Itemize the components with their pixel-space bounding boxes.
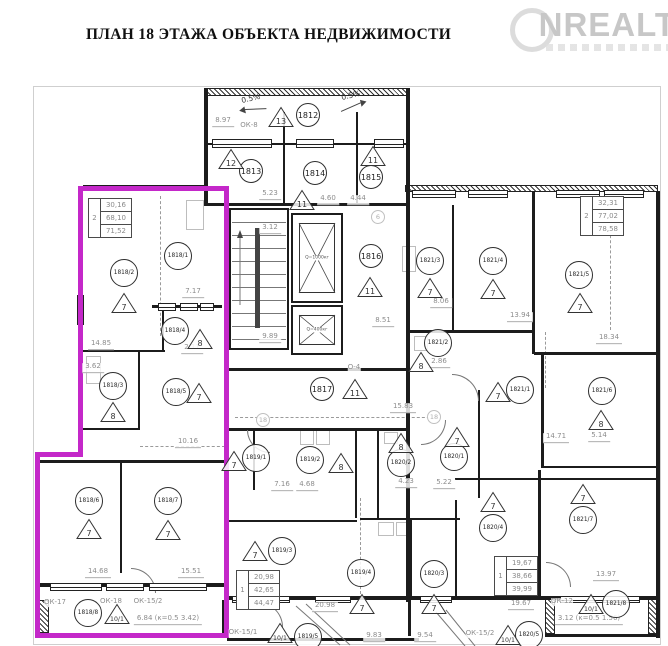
wall-segment [452,205,454,332]
dimension-label: 15.83 [390,403,416,413]
elevator-capacity-label: Q=1000кг [304,256,330,261]
dimension-label: 4.23 [395,478,417,488]
wall-segment [656,191,660,638]
room-number-circle: 1821/8 [602,590,630,618]
room-number-circle: 1818/6 [75,487,103,515]
wall-segment [478,390,480,498]
dimension-label: 9.54 [414,632,436,642]
area-triangle: 11 [341,378,369,401]
room-number-circle: 1821/4 [479,247,507,275]
area-triangle: 7 [154,519,182,542]
area-triangle: 11 [356,276,384,299]
window-opening [180,303,198,311]
wall-segment [356,112,358,205]
svg-text:7: 7 [165,530,170,539]
apartment-area-table: 120,9842,6544,47 [236,570,280,610]
room-number-circle: 1818/2 [110,259,138,287]
fixture [186,200,204,230]
room-number-circle: 1818/1 [164,242,192,270]
area-triangle: 11 [359,145,387,168]
area-triangle: 7 [348,593,376,616]
highlight-outline-segment [78,186,83,457]
window-opening [468,190,508,198]
area-value-cell: 19,67 [507,557,537,569]
dimension-label: 20.98 [312,602,338,612]
dimension-label: 14.85 [88,340,114,350]
fixture [300,430,314,445]
area-triangle: 7 [566,292,594,315]
area-triangle: 7 [479,278,507,301]
dimension-label: 9.89 [259,333,281,343]
svg-text:7: 7 [121,303,126,312]
axis-bubble: 18 [427,410,441,424]
floor-plan-page: ПЛАН 18 ЭТАЖА ОБЪЕКТА НЕДВИЖИМОСТИ NREAL… [0,0,668,646]
stair-tread [232,222,286,223]
fixture [378,522,394,536]
dimension-label: 3.12 [259,224,281,234]
dimension-label: 4.60 [317,195,339,205]
window-opening [106,583,144,591]
dimension-label: 5.23 [259,190,281,200]
area-triangle: 10/1 [266,622,294,645]
svg-text:11: 11 [297,200,307,209]
dashed-partition-line [160,196,161,336]
area-value-cell: 32,31 [593,197,623,209]
room-number-circle: 1819/3 [268,537,296,565]
room-number-circle: 1818/7 [154,487,182,515]
svg-text:8: 8 [338,463,343,472]
dimension-label: 7.17 [182,288,204,298]
area-value-cell: 38,66 [507,569,537,582]
area-triangle: 8 [186,328,214,351]
fixture [316,430,330,445]
svg-text:10/1: 10/1 [110,616,124,623]
room-number-circle: 1818/8 [74,599,102,627]
svg-text:7: 7 [359,604,364,613]
room-count-cell: 1 [237,571,249,609]
dashed-partition-line [610,230,611,330]
dimension-label: 8.97 [212,117,234,127]
room-number-circle: 1820/3 [420,560,448,588]
area-value-cell: 78,58 [593,222,623,235]
room-number-circle: 1816 [359,244,383,268]
dimension-label: 6.84 (к=0.5 3.42) [134,615,202,625]
room-number-circle: 1818/4 [161,317,189,345]
wall-segment [538,470,541,598]
room-number-circle: 1821/5 [565,261,593,289]
dimension-label: 4.44 [347,195,369,205]
window-label: ОК-17 [44,599,66,607]
stair-stringer [255,228,260,328]
room-number-circle: 1821/7 [569,506,597,534]
svg-text:7: 7 [490,289,495,298]
wall-segment [83,350,165,352]
area-triangle: 10/1 [577,593,605,616]
area-triangle: 7 [75,518,103,541]
area-value-cell: 77,02 [593,209,623,222]
wall-segment [408,600,411,636]
area-triangle: 7 [420,593,448,616]
window-opening [50,583,102,591]
svg-text:7: 7 [577,303,582,312]
wall-segment [83,428,140,430]
area-triangle: 13 [267,106,295,129]
area-triangle: 8 [407,351,435,374]
room-number-circle: 1812 [296,103,320,127]
area-triangle: 8 [99,401,127,424]
area-triangle: 8 [587,409,615,432]
dimension-label: 5.22 [433,479,455,489]
room-count-cell: 2 [89,199,101,237]
dimension-label: 14.68 [85,568,111,578]
svg-text:7: 7 [431,604,436,613]
wall-segment [227,638,419,641]
axis-bubble: 6 [371,210,385,224]
floor-plan-drawing: Q=1000кгQ=400кг1812131813121814111815111… [0,0,668,646]
dimension-label: 7.16 [271,481,293,491]
svg-text:10/1: 10/1 [584,606,598,613]
area-triangle: 7 [110,292,138,315]
apartment-area-table: 230,1668,1071,52 [88,198,132,238]
window-opening [158,303,176,311]
wall-segment [229,208,289,210]
svg-text:8: 8 [398,443,403,452]
window-opening [412,190,456,198]
dimension-label: 18.34 [596,334,622,344]
wall-segment [355,430,357,518]
svg-text:7: 7 [580,494,585,503]
room-number-circle: 1814 [303,161,327,185]
wall-segment [229,368,410,371]
dashed-partition-line [545,332,546,388]
wall-segment [545,634,658,637]
wall-segment [287,208,289,350]
dimension-label: 10.16 [175,438,201,448]
area-triangle: 11 [288,189,316,212]
dimension-label: 13.94 [507,312,533,322]
window-label: ОК-15/1 [229,629,258,637]
svg-text:10/1: 10/1 [273,635,287,642]
area-triangle: 8 [327,452,355,475]
window-opening [149,583,207,591]
svg-text:7: 7 [86,529,91,538]
room-number-circle: 1819/5 [294,623,322,646]
area-triangle: 12 [217,148,245,171]
wall-segment [227,520,357,522]
window-label: ОК-15/2 [466,630,495,638]
room-number-circle: 1821/3 [416,247,444,275]
highlight-outline-segment [35,452,83,457]
wall-segment [377,430,379,518]
wall-segment [410,520,412,598]
svg-text:13: 13 [276,117,286,126]
dimension-label: 14.71 [543,433,569,443]
svg-text:8: 8 [598,420,603,429]
svg-text:11: 11 [350,389,360,398]
window-label: ОК-12 [551,598,573,606]
room-count-cell: 1 [495,557,507,595]
window-opening [200,303,214,311]
dimension-label: 8.51 [372,317,394,327]
svg-text:7: 7 [427,288,432,297]
wall-segment [541,352,544,468]
room-number-circle: 1815 [359,165,383,189]
svg-text:8: 8 [110,412,115,421]
svg-text:11: 11 [368,156,378,165]
dimension-label: 3.62 [82,363,104,373]
room-number-circle: 1820/4 [479,514,507,542]
apartment-area-table: 232,3177,0278,58 [580,196,624,236]
dimension-label: О-4 [348,364,361,372]
room-number-circle: 1819/4 [347,559,375,587]
area-triangle: 7 [484,381,512,404]
area-value-cell: 71,52 [101,224,131,237]
highlight-outline-segment [35,633,229,638]
svg-text:7: 7 [495,392,500,401]
room-number-circle: 1817 [310,377,334,401]
wall-segment [455,478,660,480]
window-label: ОК-15/2 [134,598,163,606]
elevator-capacity-label: Q=400кг [306,328,329,333]
svg-text:7: 7 [231,461,236,470]
dimension-label: 9.83 [363,632,385,642]
svg-text:7: 7 [252,551,257,560]
area-triangle: 7 [479,491,507,514]
area-triangle: 10/1 [494,624,522,646]
window-label: ОК-8 [240,122,257,130]
area-triangle: 7 [569,483,597,506]
svg-text:11: 11 [365,287,375,296]
dimension-label: 19.67 [508,600,534,610]
area-triangle: 7 [416,277,444,300]
area-triangle: 7 [241,540,269,563]
wall-segment [455,500,457,598]
area-value-cell: 68,10 [101,211,131,224]
area-value-cell: 42,65 [249,583,279,596]
dimension-label: 4.68 [296,481,318,491]
svg-text:10/1: 10/1 [501,637,515,644]
svg-text:8: 8 [197,339,202,348]
area-value-cell: 44,47 [249,596,279,609]
highlight-outline-segment [78,186,229,191]
svg-text:8: 8 [418,362,423,371]
svg-text:7: 7 [490,502,495,511]
svg-text:12: 12 [226,159,236,168]
wall-segment [138,352,140,430]
area-value-cell: 30,16 [101,199,131,211]
apartment-area-table: 119,6738,6639,99 [494,556,538,596]
area-value-cell: 39,99 [507,582,537,595]
dimension-label: 8.06 [430,298,452,308]
area-triangle: 7 [220,450,248,473]
highlight-outline-segment [224,186,229,635]
wall-segment [229,208,231,350]
dimension-label: 13.97 [593,571,619,581]
window-opening [296,139,334,148]
dimension-label: 5.14 [588,432,610,442]
room-count-cell: 2 [581,197,593,235]
room-number-circle: 1818/3 [99,372,127,400]
wall-segment [541,466,660,468]
area-triangle: 7 [185,382,213,405]
svg-text:7: 7 [196,393,201,402]
room-number-circle: 1819/2 [296,446,324,474]
room-number-circle: 1821/6 [588,377,616,405]
area-triangle: 7 [443,426,471,449]
wall-segment [120,463,122,573]
area-value-cell: 20,98 [249,571,279,583]
area-triangle: 10/1 [103,603,131,626]
svg-text:7: 7 [454,437,459,446]
highlight-outline-segment [35,452,40,638]
exterior-wall-hatch [204,88,410,96]
axis-bubble: 18 [256,413,270,427]
dimension-label: 15.51 [178,568,204,578]
wall-segment [534,352,660,355]
wall-segment [37,460,227,463]
wall-segment [229,348,289,350]
area-triangle: 8 [387,432,415,455]
